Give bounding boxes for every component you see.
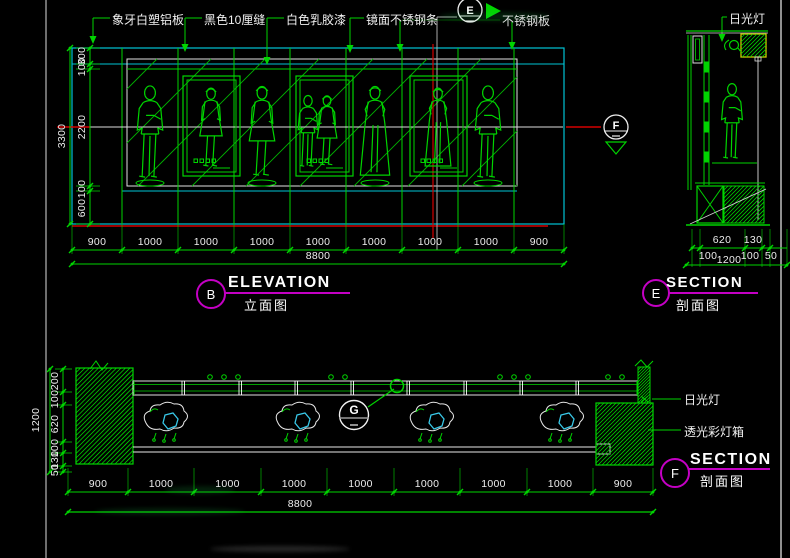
dim-label: 900 <box>530 236 548 248</box>
dim-label: 1000 <box>481 478 506 490</box>
dim-label: 620 <box>713 234 731 246</box>
dim-label: 600 <box>76 198 88 216</box>
dim-label: 1000 <box>348 478 373 490</box>
dim-label: 1000 <box>418 236 443 248</box>
section-f-title: SECTION <box>690 451 772 469</box>
dim-label: 1000 <box>282 478 307 490</box>
callout-latex-paint: 白色乳胶漆 <box>286 11 346 28</box>
dim-label: 1000 <box>474 236 499 248</box>
dim-label: 2200 <box>76 115 88 140</box>
view-marker-f: F <box>660 458 690 488</box>
dim-label: 1000 <box>306 236 331 248</box>
title-underline <box>222 292 350 294</box>
dim-label: 200 <box>49 371 61 389</box>
cut-marker-f: F <box>604 115 628 154</box>
view-direction-arrow-icon <box>606 142 626 154</box>
elevation-subtitle: 立面图 <box>244 295 289 314</box>
dim-label: 50 <box>49 463 61 475</box>
dim-label: 1200 <box>717 254 742 266</box>
dim-label: 1000 <box>149 478 174 490</box>
callout-fluorescent-top: 日光灯 <box>729 10 765 27</box>
dim-label: 1000 <box>548 478 573 490</box>
callout-aluminum-panel: 象牙白塑铝板 <box>112 11 184 28</box>
dim-label: 8800 <box>306 250 331 262</box>
view-marker-b: B <box>196 279 226 309</box>
callout-lightbox: 透光彩灯箱 <box>684 423 744 440</box>
watermark-smudge <box>210 546 350 552</box>
cad-viewport[interactable]: E F G 象牙白塑铝板 黑色10厘缝 白色乳胶漆 镜面不锈钢条 不锈钢板 日光… <box>0 0 790 558</box>
section-f-subtitle: 剖面图 <box>700 471 745 490</box>
section-e-title: SECTION <box>666 274 743 291</box>
dim-label: 1000 <box>138 236 163 248</box>
dim-label: 1000 <box>415 478 440 490</box>
dim-label: 100 <box>699 250 717 262</box>
dim-label: 1000 <box>250 236 275 248</box>
callout-fluorescent-bottom: 日光灯 <box>684 391 720 408</box>
section-e-subtitle: 剖面图 <box>676 295 721 314</box>
dim-label: 1000 <box>362 236 387 248</box>
section-f-view <box>47 360 681 515</box>
dim-label: 900 <box>614 478 632 490</box>
dim-label: 100 <box>76 57 88 75</box>
dim-label: 900 <box>88 236 106 248</box>
dim-label: 1000 <box>215 478 240 490</box>
elevation-title: ELEVATION <box>228 274 331 292</box>
watermark-smudge <box>95 508 245 515</box>
callout-mirror-steel-strip: 镜面不锈钢条 <box>366 11 438 28</box>
title-underline <box>663 292 758 294</box>
detail-marker-g: G <box>339 380 404 430</box>
dim-label: 1200 <box>30 408 42 433</box>
dim-label: 100 <box>49 389 61 407</box>
dim-label: 130 <box>744 234 762 246</box>
dim-label: 100 <box>741 250 759 262</box>
cut-marker-f-letter: F <box>613 120 620 132</box>
dim-label: 8800 <box>288 498 313 510</box>
dim-label: 50 <box>765 250 777 262</box>
dim-label: 900 <box>89 478 107 490</box>
dim-label: 100 <box>76 179 88 197</box>
callout-stainless-plate: 不锈钢板 <box>502 12 550 29</box>
dim-label: 3300 <box>56 124 68 149</box>
section-e-view <box>683 31 790 268</box>
callout-black-seam: 黑色10厘缝 <box>204 11 265 28</box>
detail-marker-g-letter: G <box>349 403 358 417</box>
dim-label: 1000 <box>194 236 219 248</box>
dim-label: 620 <box>49 414 61 432</box>
